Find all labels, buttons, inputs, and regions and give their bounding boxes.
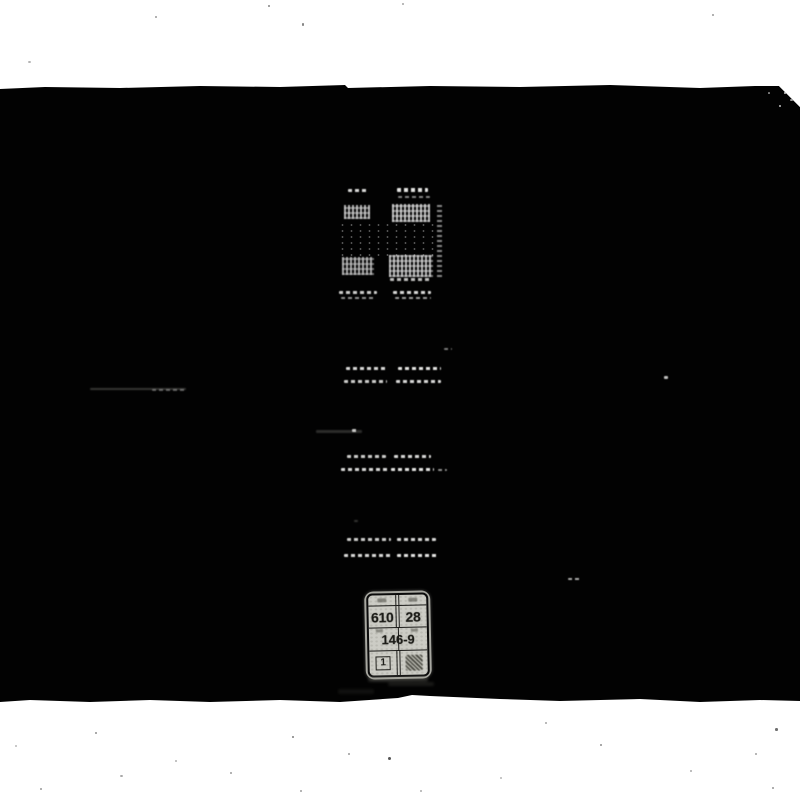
cover-scratch (152, 389, 185, 391)
spine-band-segment (341, 297, 375, 299)
label-number-row: 610 28 (368, 604, 426, 627)
spine-band-segment (347, 538, 391, 541)
spine-band-segment (398, 196, 430, 198)
label-body: 610 28 146-9 1 (366, 592, 430, 677)
cover-fleck (568, 578, 581, 580)
dust-speck (15, 745, 17, 747)
spine-band-segment (395, 297, 431, 299)
spine-band-segment (397, 538, 436, 541)
dust-speck (500, 777, 502, 779)
spine-ornament-block (392, 204, 430, 222)
label-bottom-smudge (388, 682, 434, 686)
dust-speck (545, 722, 547, 724)
spine-band-segment (344, 554, 393, 557)
spine-band-segment (346, 367, 386, 370)
dust-speck (175, 760, 177, 762)
spine-band-segment (397, 554, 438, 557)
dust-speck (292, 736, 294, 738)
label-copy-number: 1 (375, 656, 391, 670)
label-header-cell (398, 594, 426, 605)
label-tiny-marks (408, 598, 417, 602)
dust-speck (772, 787, 774, 789)
spine-ornament-block (389, 255, 433, 277)
label-tiny-marks (377, 598, 386, 602)
label-bottom-row: 1 (369, 649, 428, 675)
spine-band-segment (393, 291, 431, 294)
dust-speck (348, 753, 350, 755)
cover-fleck (354, 520, 358, 522)
spine-speckle-field (338, 222, 438, 258)
label-number-middle: 146-9 (381, 631, 415, 647)
cover-fleck (664, 376, 668, 379)
dust-speck (402, 3, 404, 5)
label-number-left: 610 (368, 606, 397, 628)
corner-speck (790, 99, 793, 101)
corner-speck (784, 92, 786, 94)
label-stamp-smudge (405, 654, 422, 670)
spine-band-segment (341, 468, 388, 471)
dust-speck (230, 772, 232, 774)
spine-band-segment (397, 188, 428, 192)
dust-speck (155, 16, 157, 18)
spine-ornament-block (344, 205, 370, 219)
dust-speck (40, 788, 42, 790)
label-number-right: 28 (398, 605, 427, 627)
spine-band-segment (438, 469, 447, 471)
cover-scratch (352, 429, 358, 432)
spine-band-segment (347, 455, 386, 458)
corner-speck (779, 105, 781, 107)
book-cover-scan-page: 610 28 146-9 1 (0, 0, 800, 800)
spine-band-segment (398, 367, 441, 370)
dust-speck (690, 770, 692, 772)
dust-speck (712, 14, 714, 16)
spine-band-segment (391, 468, 434, 471)
label-paper-edge: 610 28 146-9 1 (364, 590, 432, 679)
dust-speck (120, 775, 123, 777)
label-stamp-cell (399, 650, 428, 675)
dust-speck (95, 732, 97, 734)
dust-speck (388, 757, 391, 760)
corner-speck (768, 92, 770, 94)
spine-tail-smudge (338, 689, 374, 694)
spine-band-segment (444, 348, 452, 350)
dust-speck (28, 61, 31, 63)
dust-speck (775, 728, 778, 731)
spine-band-segment (396, 380, 441, 383)
dust-speck (302, 23, 304, 26)
spine-band-segment (390, 278, 431, 281)
spine-band-segment (339, 291, 377, 294)
dust-speck (268, 5, 270, 7)
dust-speck (420, 790, 422, 792)
spine-band-segment (394, 455, 431, 458)
label-header-cell (368, 595, 396, 606)
label-middle-row: 146-9 (369, 626, 427, 650)
spine-band-segment (348, 189, 367, 192)
library-spine-label: 610 28 146-9 1 (364, 590, 432, 679)
dust-speck (600, 744, 602, 746)
label-copy-cell: 1 (369, 651, 398, 676)
dust-speck (755, 753, 757, 755)
dust-speck (300, 790, 302, 792)
spine-ornament-block (342, 257, 374, 275)
spine-band-segment (344, 380, 387, 383)
